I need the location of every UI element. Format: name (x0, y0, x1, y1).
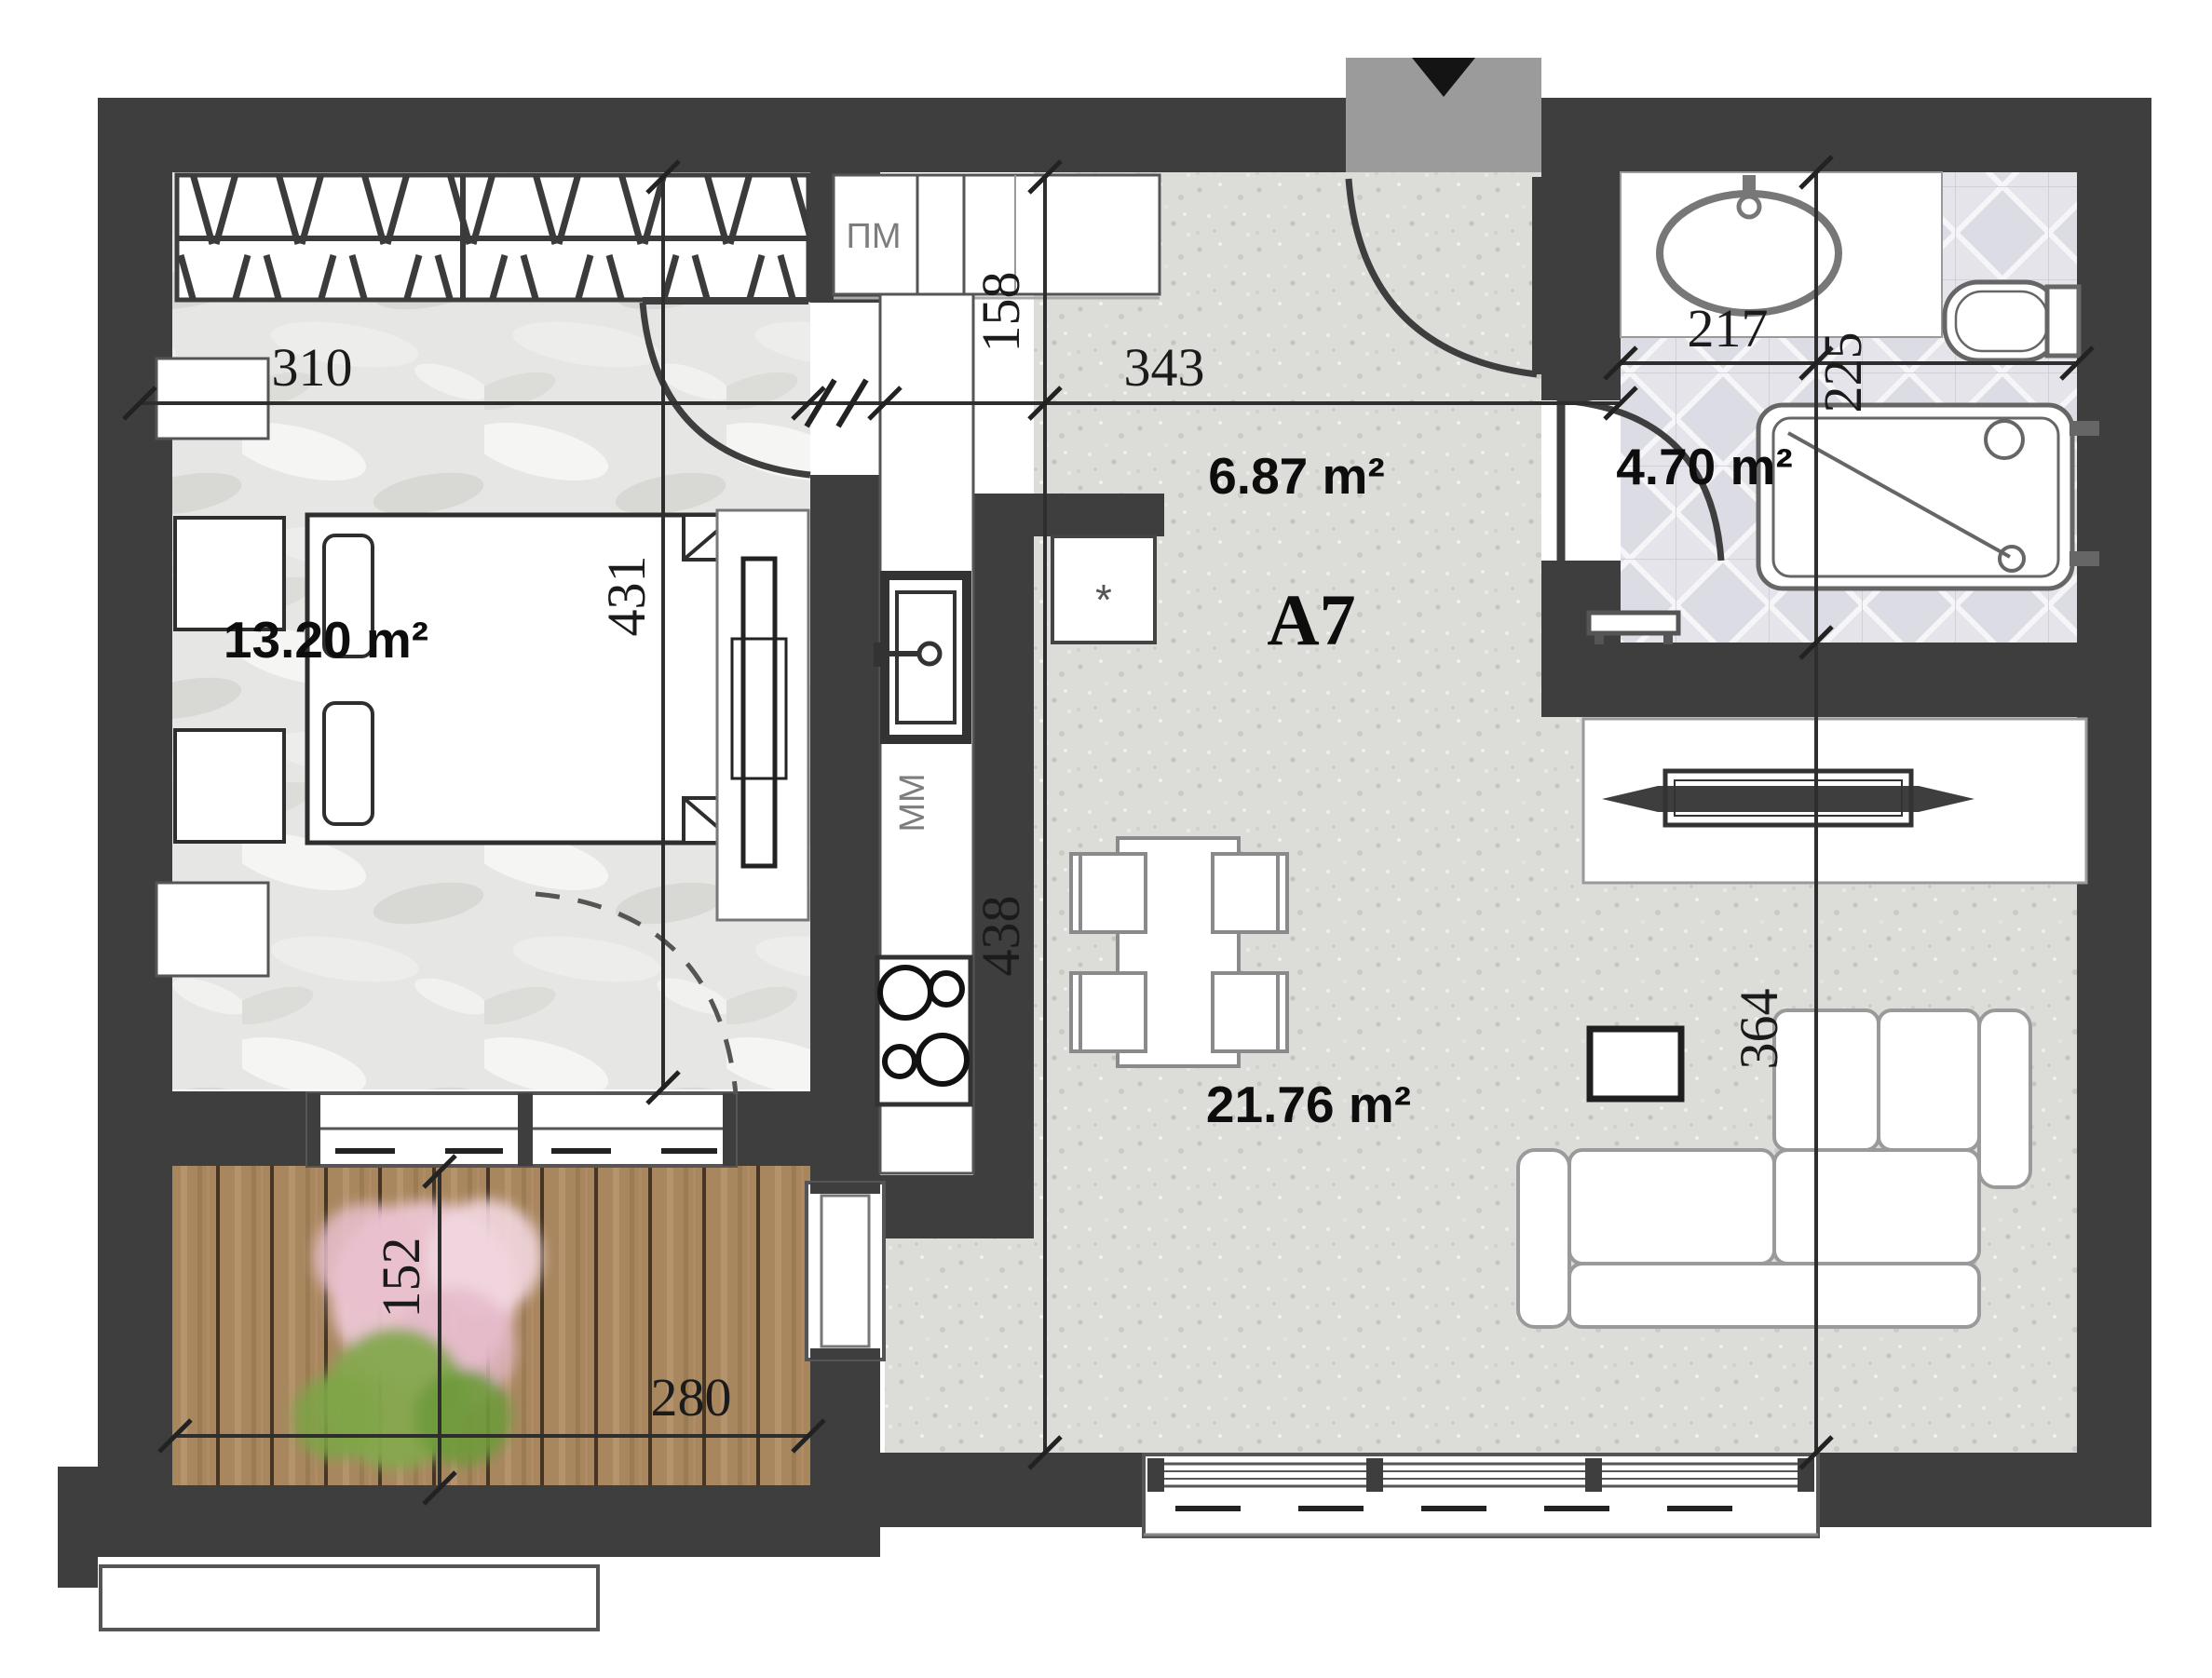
dim-bathroom-width: 217 (1688, 298, 1769, 359)
tv-dresser (717, 510, 808, 920)
bedroom-balcony-door-window (307, 1093, 736, 1166)
dim-living-depth-left: 438 (970, 896, 1031, 977)
wall-kitchen-stub (973, 494, 1164, 536)
floor-plan-page: * ПМ ММ (0, 0, 2212, 1678)
wall-top-left (98, 98, 1346, 172)
stove (877, 957, 970, 1104)
sofa-chaise (1879, 1010, 1979, 1150)
radiator-niche-top (156, 359, 268, 439)
wall-bedroom-balcony-left (172, 1091, 307, 1166)
hallway-area-label: 6.87 m² (1208, 447, 1385, 505)
partition-bedroom (810, 475, 880, 1183)
wall-below-bathroom (1541, 643, 2151, 717)
dim-hallway-width: 343 (1124, 337, 1205, 398)
tv-icon (1602, 786, 1975, 812)
coffee-table (1590, 1029, 1681, 1099)
dim-balcony-depth: 152 (371, 1238, 431, 1319)
sideboard (1583, 719, 2086, 883)
dim-kitchen-depth: 158 (970, 272, 1031, 353)
bedroom-area-label: 13.20 m² (224, 611, 428, 669)
sofa-armrest (1518, 1150, 1569, 1327)
boiler-box: * (1052, 536, 1155, 643)
wall-cap-bottom-left (58, 1467, 98, 1588)
living-south-window (1144, 1455, 1818, 1536)
wall-bedroom-balcony-right (736, 1091, 810, 1166)
wall-top-right (1541, 98, 2151, 172)
living-balcony-window (807, 1183, 884, 1360)
radiator-niche-bottom (156, 883, 268, 976)
nightstand (175, 730, 284, 842)
wall-kitchen-vertical (973, 494, 1034, 1238)
dim-living-depth-right: 364 (1729, 989, 1789, 1070)
pillow (324, 703, 373, 824)
wardrobe (177, 175, 808, 300)
washing-machine-label: ПМ (847, 217, 902, 256)
tv-icon (743, 559, 775, 866)
boiler-mark-label: * (1095, 575, 1112, 624)
wall-bottom-balcony (98, 1485, 810, 1557)
wall-right (2077, 172, 2151, 1527)
bathroom-area-label: 4.70 m² (1616, 438, 1793, 495)
sofa-seat (1774, 1150, 1979, 1264)
faucet-icon (874, 643, 887, 667)
dishwasher-label: ММ (893, 773, 932, 832)
toilet (1945, 282, 2079, 360)
wall-left (98, 98, 172, 1495)
floor-plan: * ПМ ММ (0, 0, 2212, 1678)
kitchen-sink (874, 575, 967, 739)
dim-bedroom-depth: 431 (596, 556, 657, 637)
wall-bathroom-left-upper (1541, 172, 1621, 400)
unit-label: A7 (1267, 579, 1355, 660)
sofa-chaise (1774, 1010, 1879, 1150)
dim-bathroom-depth: 225 (1812, 332, 1873, 413)
bed (307, 515, 736, 843)
balcony-railing (101, 1566, 598, 1630)
dim-bedroom-width: 310 (272, 337, 353, 398)
living-area-label: 21.76 m² (1206, 1076, 1411, 1133)
hallway-dining-floor (1034, 172, 1541, 1453)
sofa-armrest (1979, 1010, 2030, 1187)
shower (1758, 405, 2099, 589)
partition-balcony-living (810, 1360, 880, 1557)
living-floor-left (885, 1238, 1034, 1453)
dim-balcony-width: 280 (651, 1367, 732, 1428)
sofa-seat (1569, 1150, 1774, 1264)
sofa-base (1569, 1264, 1979, 1327)
